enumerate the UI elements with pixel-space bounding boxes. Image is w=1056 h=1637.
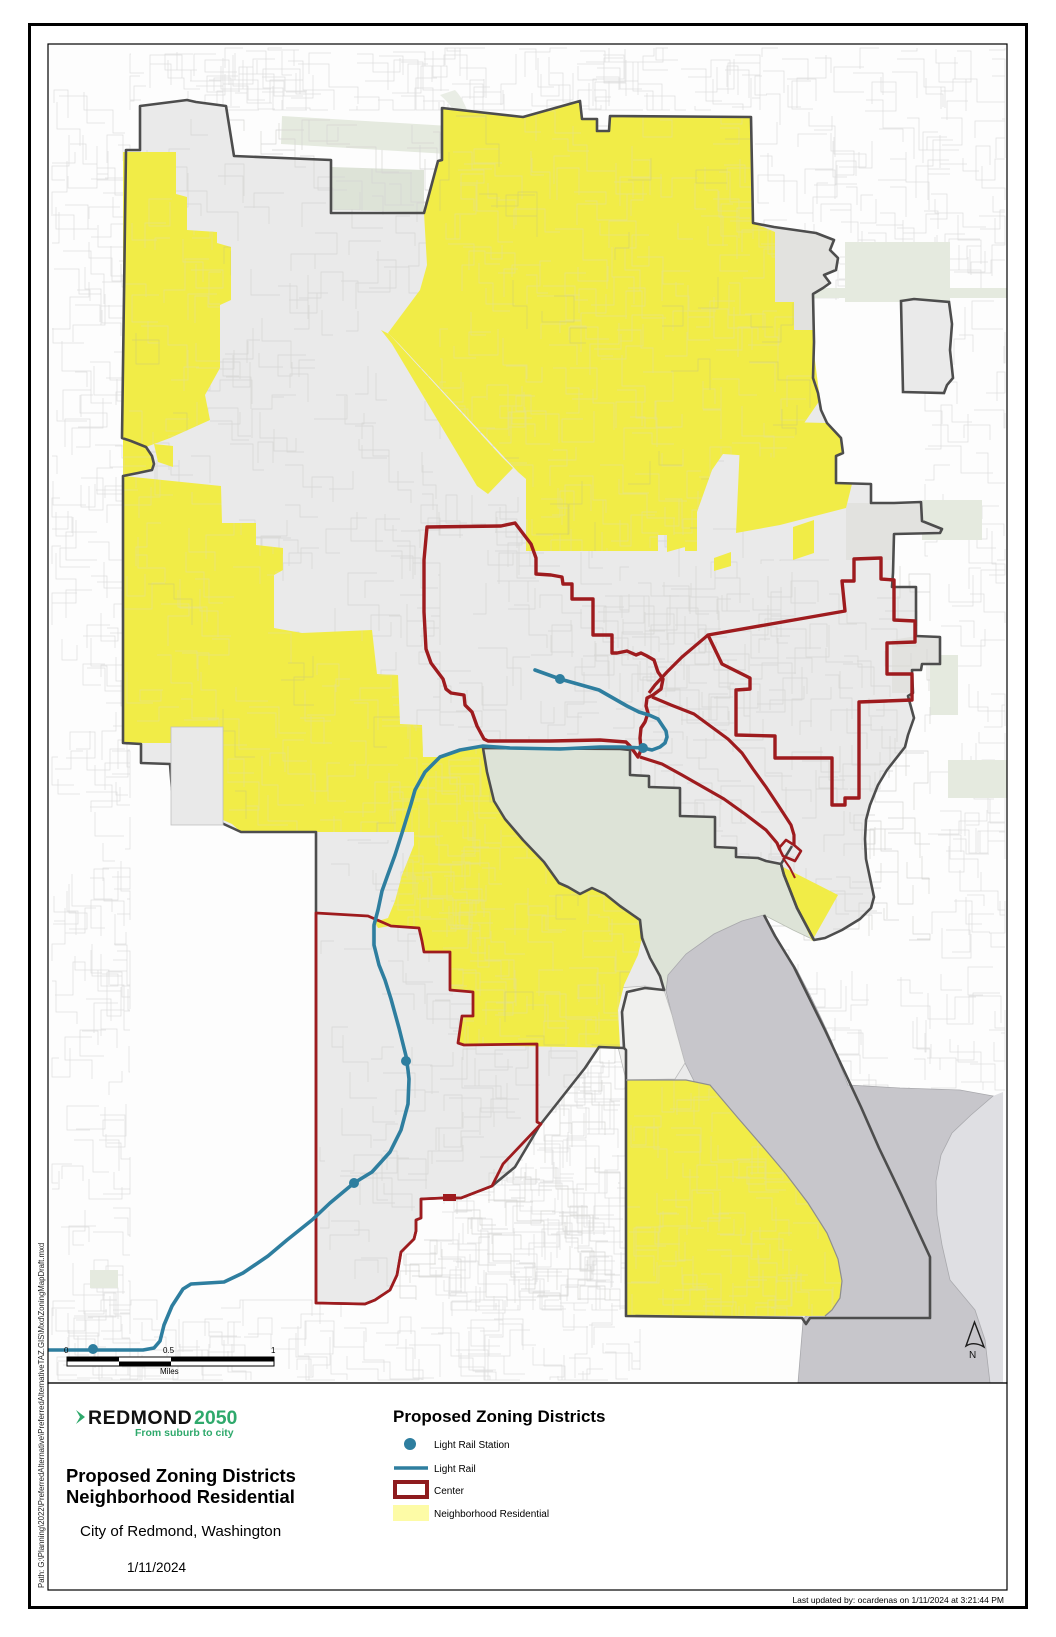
svg-text:N: N [969, 1350, 976, 1361]
svg-text:REDMOND: REDMOND [88, 1407, 192, 1429]
svg-text:Center: Center [434, 1486, 465, 1497]
svg-text:2050: 2050 [194, 1407, 238, 1429]
svg-text:0.5: 0.5 [163, 1346, 175, 1355]
svg-text:Proposed Zoning Districts: Proposed Zoning Districts [66, 1465, 296, 1486]
svg-text:City of Redmond, Washington: City of Redmond, Washington [80, 1523, 281, 1540]
svg-text:Proposed Zoning Districts: Proposed Zoning Districts [393, 1407, 606, 1426]
svg-text:Light Rail Station: Light Rail Station [434, 1440, 510, 1451]
svg-text:1: 1 [271, 1346, 276, 1355]
svg-text:From suburb to city: From suburb to city [135, 1427, 234, 1439]
svg-text:Neighborhood Residential: Neighborhood Residential [434, 1509, 549, 1520]
svg-text:0: 0 [64, 1346, 69, 1355]
svg-text:1/11/2024: 1/11/2024 [127, 1560, 187, 1575]
svg-text:Light Rail: Light Rail [434, 1464, 476, 1475]
svg-text:Miles: Miles [160, 1367, 179, 1376]
svg-text:Last updated by: ocardenas on: Last updated by: ocardenas on 1/11/2024 … [792, 1595, 1004, 1605]
svg-text:Neighborhood Residential: Neighborhood Residential [66, 1486, 295, 1507]
svg-text:Path: G:\Planning\2022\Preferr: Path: G:\Planning\2022\PreferredAlternat… [37, 1243, 46, 1588]
